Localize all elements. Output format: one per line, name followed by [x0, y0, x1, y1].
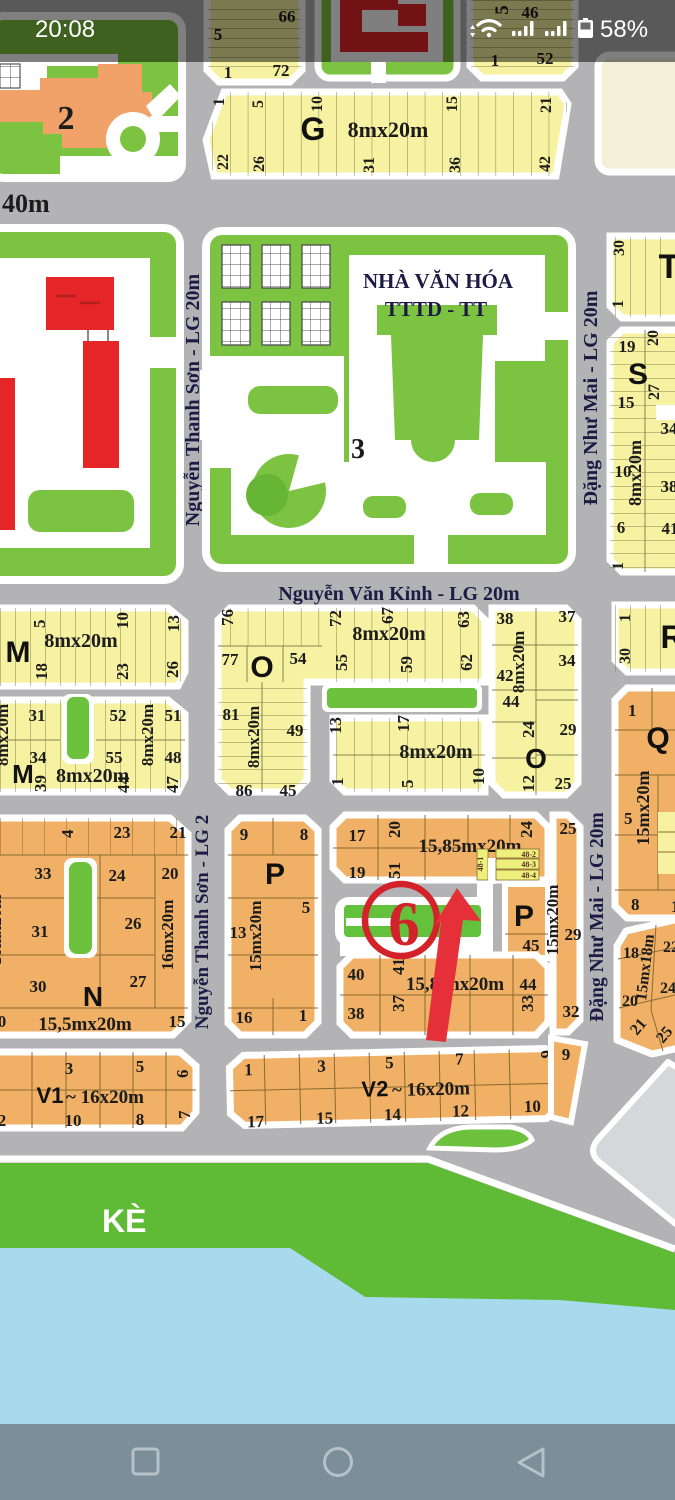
svg-text:72: 72 — [273, 61, 290, 80]
svg-text:20: 20 — [622, 993, 638, 1010]
svg-text:8: 8 — [631, 895, 640, 914]
svg-text:17: 17 — [394, 715, 413, 733]
svg-text:26: 26 — [251, 156, 268, 172]
svg-text:15: 15 — [444, 96, 461, 112]
svg-text:55: 55 — [106, 748, 123, 767]
svg-text:13: 13 — [164, 615, 183, 632]
svg-text:54: 54 — [290, 649, 308, 668]
svg-text:30: 30 — [30, 977, 47, 996]
svg-text:1: 1 — [211, 98, 228, 106]
svg-text:19: 19 — [619, 337, 636, 356]
svg-text:24: 24 — [517, 821, 536, 839]
svg-text:26: 26 — [125, 914, 142, 933]
svg-text:41: 41 — [662, 519, 675, 538]
svg-text:77: 77 — [222, 650, 240, 669]
svg-text:8: 8 — [136, 1110, 145, 1129]
svg-text:17: 17 — [671, 897, 675, 916]
svg-text:38: 38 — [497, 609, 514, 628]
svg-text:62: 62 — [457, 654, 476, 671]
svg-text:27: 27 — [130, 972, 148, 991]
svg-text:Q: Q — [646, 722, 669, 755]
svg-text:10: 10 — [113, 612, 132, 629]
svg-text:22: 22 — [663, 939, 675, 956]
svg-text:9: 9 — [562, 1045, 571, 1064]
svg-text:3: 3 — [317, 1057, 326, 1076]
svg-text:5: 5 — [624, 809, 633, 828]
svg-text:6: 6 — [617, 518, 626, 537]
svg-text:15,8 mx20m: 15,8 mx20m — [406, 974, 504, 995]
svg-text:25: 25 — [555, 774, 572, 793]
svg-text:51: 51 — [385, 862, 404, 879]
svg-text:26: 26 — [163, 661, 182, 678]
svg-text:9: 9 — [240, 825, 249, 844]
svg-text:R: R — [660, 619, 675, 655]
svg-text:24: 24 — [109, 866, 127, 885]
svg-text:49: 49 — [287, 721, 304, 740]
svg-text:O: O — [250, 651, 273, 684]
svg-text:2: 2 — [58, 100, 75, 137]
svg-text:38: 38 — [348, 1004, 365, 1023]
svg-text:31: 31 — [32, 922, 49, 941]
svg-text:48-1: 48-1 — [476, 857, 485, 872]
svg-text:67: 67 — [378, 607, 397, 625]
svg-text:8mx20m: 8mx20m — [244, 706, 263, 768]
svg-text:V1: V1 — [37, 1083, 64, 1108]
svg-text:15: 15 — [169, 1012, 186, 1031]
svg-text:10: 10 — [65, 1111, 82, 1130]
svg-text:34: 34 — [559, 651, 577, 670]
svg-text:O: O — [525, 743, 547, 774]
svg-text:51: 51 — [165, 706, 182, 725]
svg-text:13: 13 — [326, 717, 345, 734]
svg-text:8: 8 — [300, 825, 309, 844]
svg-text:N: N — [83, 981, 103, 1012]
svg-text:48-4: 48-4 — [521, 871, 536, 880]
svg-text:1: 1 — [617, 614, 634, 622]
svg-text:86: 86 — [236, 781, 253, 800]
svg-text:4: 4 — [58, 829, 77, 838]
svg-text:~ 16x20m: ~ 16x20m — [66, 1087, 144, 1108]
svg-text:33: 33 — [518, 995, 537, 1012]
svg-text:6: 6 — [388, 889, 420, 959]
svg-text:20: 20 — [645, 330, 662, 346]
svg-text:19: 19 — [349, 863, 366, 882]
svg-text:37: 37 — [559, 607, 577, 626]
svg-text:42: 42 — [497, 666, 514, 685]
svg-text:59: 59 — [397, 656, 416, 673]
svg-text:3: 3 — [351, 434, 365, 465]
svg-text:34: 34 — [661, 419, 675, 438]
svg-text:Đặng Như Mai - LG 20m: Đặng Như Mai - LG 20m — [587, 812, 608, 1021]
svg-text:1: 1 — [328, 778, 347, 787]
svg-text:81: 81 — [223, 705, 240, 724]
svg-text:33: 33 — [35, 864, 52, 883]
svg-text:45: 45 — [280, 781, 297, 800]
svg-text:23: 23 — [114, 823, 131, 842]
svg-text:20:08: 20:08 — [35, 16, 95, 43]
svg-text:32: 32 — [563, 1002, 580, 1021]
svg-text:15mx20m: 15mx20m — [543, 885, 562, 956]
svg-text:5: 5 — [30, 620, 49, 629]
svg-text:42: 42 — [537, 156, 554, 172]
svg-text:24: 24 — [660, 980, 675, 997]
svg-text:5: 5 — [398, 780, 417, 789]
svg-text:8mx20m: 8mx20m — [138, 704, 157, 766]
svg-text:21: 21 — [538, 97, 555, 113]
svg-text:8mx20m: 8mx20m — [348, 117, 429, 142]
svg-text:T: T — [659, 248, 675, 286]
svg-text:~ 16x20m: ~ 16x20m — [392, 1078, 471, 1101]
svg-text:21: 21 — [170, 823, 187, 842]
svg-text:1: 1 — [628, 701, 637, 720]
svg-text:1: 1 — [299, 1006, 308, 1025]
svg-text:29: 29 — [565, 925, 582, 944]
svg-text:5: 5 — [250, 100, 267, 108]
svg-text:30: 30 — [617, 648, 634, 664]
svg-text:0: 0 — [0, 1012, 6, 1031]
svg-text:14: 14 — [384, 1105, 402, 1124]
svg-text:15,5mx20m: 15,5mx20m — [38, 1014, 132, 1035]
svg-text:TTTD - TT: TTTD - TT — [385, 297, 487, 321]
svg-text:44: 44 — [114, 776, 133, 794]
svg-text:36: 36 — [447, 157, 464, 173]
svg-text:1: 1 — [610, 562, 627, 570]
svg-text:15mx20m: 15mx20m — [633, 771, 653, 846]
svg-text:8mx20m: 8mx20m — [44, 630, 118, 652]
svg-text:3: 3 — [65, 1059, 74, 1078]
svg-text:18: 18 — [623, 945, 639, 962]
svg-text:41: 41 — [389, 958, 408, 975]
svg-text:7: 7 — [455, 1049, 464, 1068]
svg-text:48-3: 48-3 — [521, 860, 536, 869]
svg-text:12: 12 — [519, 775, 538, 792]
svg-text:30: 30 — [611, 240, 628, 256]
svg-text:16: 16 — [236, 1008, 253, 1027]
svg-text:1: 1 — [610, 300, 627, 308]
svg-text:58%: 58% — [600, 16, 648, 43]
svg-text:72: 72 — [326, 610, 345, 627]
svg-text:22: 22 — [215, 154, 232, 170]
svg-text:1: 1 — [244, 1060, 253, 1079]
svg-text:10: 10 — [524, 1097, 541, 1116]
svg-text:Đặng Như Mai - LG 20m: Đặng Như Mai - LG 20m — [580, 290, 602, 505]
svg-text:23: 23 — [113, 663, 132, 680]
svg-text:5: 5 — [385, 1053, 394, 1072]
svg-text:V2: V2 — [361, 1076, 388, 1102]
svg-text:31: 31 — [29, 706, 46, 725]
svg-text:8mx20m: 8mx20m — [0, 704, 12, 766]
svg-text:24: 24 — [519, 721, 538, 739]
svg-text:76: 76 — [218, 609, 237, 626]
svg-text:20: 20 — [385, 821, 404, 838]
svg-text:6: 6 — [173, 1070, 192, 1079]
svg-text:38: 38 — [661, 477, 675, 496]
svg-text:Nguyễn Văn Kỉnh - LG 20m: Nguyễn Văn Kỉnh - LG 20m — [278, 583, 520, 605]
svg-text:47: 47 — [163, 776, 182, 794]
svg-text:S: S — [628, 358, 648, 391]
svg-text:25: 25 — [560, 819, 577, 838]
svg-text:P: P — [514, 900, 534, 933]
svg-text:63: 63 — [454, 611, 473, 628]
svg-text:Nguyễn Thanh Sơn - LG 2: Nguyễn Thanh Sơn - LG 2 — [192, 815, 213, 1030]
svg-text:P: P — [265, 858, 285, 891]
svg-text:15mx20m: 15mx20m — [246, 901, 265, 972]
svg-text:12: 12 — [452, 1101, 469, 1120]
svg-text:17: 17 — [349, 826, 367, 845]
svg-text:KÈ: KÈ — [102, 1203, 146, 1239]
svg-text:10: 10 — [469, 768, 488, 785]
svg-text:7: 7 — [175, 1110, 194, 1119]
svg-text:8mx20m: 8mx20m — [352, 623, 426, 645]
svg-text:5: 5 — [136, 1057, 145, 1076]
svg-text:5: 5 — [302, 898, 311, 917]
svg-text:44: 44 — [520, 975, 538, 994]
svg-text:18: 18 — [32, 663, 51, 680]
svg-text:31: 31 — [361, 157, 378, 173]
svg-text:13: 13 — [230, 923, 247, 942]
svg-text:M: M — [6, 636, 31, 669]
svg-text:8mx20m: 8mx20m — [399, 741, 473, 763]
svg-text:10: 10 — [309, 96, 326, 112]
svg-text:15: 15 — [618, 393, 635, 412]
svg-text:NHÀ VĂN HÓA: NHÀ VĂN HÓA — [363, 269, 514, 293]
svg-text:10: 10 — [615, 462, 632, 481]
svg-text:40: 40 — [348, 965, 365, 984]
svg-text:52: 52 — [110, 706, 127, 725]
svg-text:48: 48 — [165, 748, 182, 767]
svg-text:37: 37 — [389, 995, 408, 1013]
svg-text:40m: 40m — [2, 189, 50, 218]
svg-text:2: 2 — [0, 1111, 6, 1130]
svg-text:15: 15 — [316, 1108, 333, 1127]
svg-text:29: 29 — [560, 720, 577, 739]
svg-text:17: 17 — [247, 1112, 265, 1131]
svg-text:16mx20m: 16mx20m — [0, 895, 5, 966]
svg-text:16mx20m: 16mx20m — [158, 900, 177, 971]
svg-text:20: 20 — [162, 864, 179, 883]
svg-text:G: G — [301, 111, 326, 147]
svg-text:55: 55 — [332, 654, 351, 671]
svg-text:1: 1 — [224, 63, 233, 82]
svg-text:44: 44 — [503, 692, 521, 711]
svg-text:48-2: 48-2 — [521, 850, 536, 859]
svg-text:27: 27 — [646, 384, 663, 400]
svg-text:39: 39 — [31, 775, 50, 792]
